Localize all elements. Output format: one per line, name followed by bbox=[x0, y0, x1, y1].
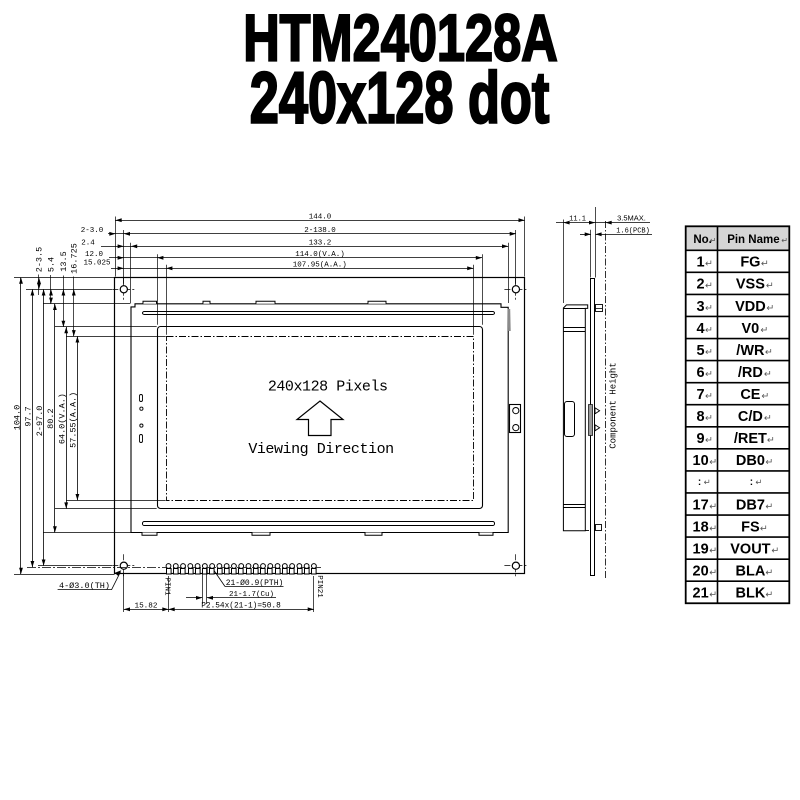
svg-text:BLK: BLK bbox=[735, 586, 765, 602]
svg-text:2-138.0: 2-138.0 bbox=[304, 227, 336, 235]
svg-text:10: 10 bbox=[693, 453, 709, 469]
svg-text:20: 20 bbox=[693, 563, 709, 579]
svg-text:↵: ↵ bbox=[709, 567, 717, 578]
svg-text:8: 8 bbox=[697, 409, 705, 425]
svg-text:133.2: 133.2 bbox=[309, 240, 332, 248]
svg-text:VDD: VDD bbox=[735, 299, 766, 315]
svg-text:V0: V0 bbox=[742, 321, 760, 337]
svg-text:11.1: 11.1 bbox=[569, 216, 586, 224]
svg-text:6: 6 bbox=[697, 365, 705, 381]
svg-text:Pin Name: Pin Name bbox=[727, 234, 779, 246]
svg-text:1.6(PCB): 1.6(PCB) bbox=[616, 228, 650, 236]
svg-text:VOUT: VOUT bbox=[730, 541, 770, 557]
svg-text:↵: ↵ bbox=[760, 523, 768, 534]
svg-text:↵: ↵ bbox=[705, 435, 713, 446]
svg-text:FS: FS bbox=[741, 519, 760, 535]
svg-text:↵: ↵ bbox=[765, 567, 773, 578]
svg-text:DB0: DB0 bbox=[736, 453, 765, 469]
svg-text:DB7: DB7 bbox=[736, 497, 765, 513]
svg-text:↵: ↵ bbox=[765, 457, 773, 468]
svg-text:3: 3 bbox=[697, 299, 705, 315]
svg-text:/RET: /RET bbox=[734, 431, 767, 447]
svg-text:2: 2 bbox=[697, 277, 705, 293]
svg-text:7: 7 bbox=[697, 387, 705, 403]
svg-text:↵: ↵ bbox=[705, 259, 713, 270]
svg-text:/WR: /WR bbox=[736, 343, 765, 359]
svg-text:↵: ↵ bbox=[705, 325, 713, 336]
svg-text:↵: ↵ bbox=[760, 325, 768, 336]
svg-text:↵: ↵ bbox=[709, 457, 717, 468]
svg-text:2-3.0: 2-3.0 bbox=[81, 227, 104, 235]
svg-text:↵: ↵ bbox=[705, 391, 713, 402]
svg-text:144.0: 144.0 bbox=[309, 214, 332, 222]
svg-text:↵: ↵ bbox=[761, 259, 769, 270]
svg-text:5.4: 5.4 bbox=[47, 257, 57, 272]
svg-text:9: 9 bbox=[697, 431, 705, 447]
svg-text:↵: ↵ bbox=[765, 501, 773, 512]
svg-text:240x128 dot: 240x128 dot bbox=[250, 57, 550, 138]
svg-text:1: 1 bbox=[697, 255, 705, 271]
svg-text:12.0: 12.0 bbox=[85, 251, 104, 259]
svg-text:114.0(V.A.): 114.0(V.A.) bbox=[295, 251, 345, 259]
svg-text:80.2: 80.2 bbox=[46, 408, 56, 428]
svg-text:16.725: 16.725 bbox=[69, 243, 79, 274]
svg-text:↵: ↵ bbox=[764, 413, 772, 424]
svg-text:107.95(A.A.): 107.95(A.A.) bbox=[293, 262, 347, 270]
svg-text:FG: FG bbox=[740, 255, 760, 271]
svg-text:13.5: 13.5 bbox=[59, 251, 69, 271]
svg-text:21-1.7(Cu): 21-1.7(Cu) bbox=[229, 591, 274, 599]
svg-text:21: 21 bbox=[693, 586, 709, 602]
svg-text:↵: ↵ bbox=[705, 369, 713, 380]
svg-text:18: 18 bbox=[693, 519, 709, 535]
svg-text:15.025: 15.025 bbox=[83, 260, 111, 268]
svg-text:2.4: 2.4 bbox=[81, 239, 95, 247]
svg-text:↵: ↵ bbox=[766, 303, 774, 314]
svg-text:BLA: BLA bbox=[735, 563, 765, 579]
svg-text:Viewing Direction: Viewing Direction bbox=[248, 441, 393, 458]
svg-text:2-3.5: 2-3.5 bbox=[35, 247, 45, 273]
svg-text:3.5MAX.: 3.5MAX. bbox=[617, 213, 646, 222]
svg-text:↵: ↵ bbox=[709, 523, 717, 534]
svg-text:21-Ø0.9(PTH): 21-Ø0.9(PTH) bbox=[226, 579, 284, 588]
svg-text:↵: ↵ bbox=[710, 236, 717, 245]
svg-text:19: 19 bbox=[693, 541, 709, 557]
svg-text:↵: ↵ bbox=[767, 435, 775, 446]
svg-text:↵: ↵ bbox=[709, 590, 717, 601]
svg-text:Component Height: Component Height bbox=[609, 362, 619, 448]
svg-text:64.0(V.A.): 64.0(V.A.) bbox=[58, 393, 68, 444]
svg-text:P2.54x(21-1)=50.8: P2.54x(21-1)=50.8 bbox=[201, 602, 281, 610]
svg-text:VSS: VSS bbox=[736, 277, 765, 293]
svg-text:↵: ↵ bbox=[705, 347, 713, 358]
svg-text:↵: ↵ bbox=[704, 477, 711, 487]
svg-text:104.0: 104.0 bbox=[12, 405, 22, 431]
svg-text:↵: ↵ bbox=[781, 236, 788, 245]
svg-text:17: 17 bbox=[693, 497, 709, 513]
svg-text:↵: ↵ bbox=[765, 347, 773, 358]
svg-text:↵: ↵ bbox=[771, 545, 779, 556]
svg-text:↵: ↵ bbox=[709, 501, 717, 512]
svg-text:CE: CE bbox=[740, 387, 760, 403]
svg-text:C/D: C/D bbox=[738, 409, 763, 425]
svg-text:↵: ↵ bbox=[765, 590, 773, 601]
svg-text:↵: ↵ bbox=[766, 281, 774, 292]
svg-text:15.82: 15.82 bbox=[134, 602, 157, 610]
svg-text:↵: ↵ bbox=[764, 369, 772, 380]
svg-text:↵: ↵ bbox=[705, 281, 713, 292]
svg-text:↵: ↵ bbox=[709, 545, 717, 556]
svg-text:97.7: 97.7 bbox=[24, 406, 34, 426]
svg-text:↵: ↵ bbox=[705, 413, 713, 424]
svg-text::: : bbox=[750, 477, 753, 488]
svg-text::: : bbox=[698, 477, 701, 488]
svg-text:PIN21: PIN21 bbox=[315, 575, 323, 598]
svg-text:57.55(A.A.): 57.55(A.A.) bbox=[69, 392, 79, 448]
svg-text:↵: ↵ bbox=[761, 391, 769, 402]
svg-text:↵: ↵ bbox=[705, 303, 713, 314]
svg-text:2-97.0: 2-97.0 bbox=[35, 406, 45, 437]
svg-text:240x128 Pixels: 240x128 Pixels bbox=[268, 379, 388, 396]
svg-text:PIN1: PIN1 bbox=[163, 577, 171, 596]
svg-text:/RD: /RD bbox=[738, 365, 763, 381]
svg-text:4: 4 bbox=[697, 321, 705, 337]
svg-text:↵: ↵ bbox=[755, 477, 762, 487]
svg-text:5: 5 bbox=[697, 343, 705, 359]
